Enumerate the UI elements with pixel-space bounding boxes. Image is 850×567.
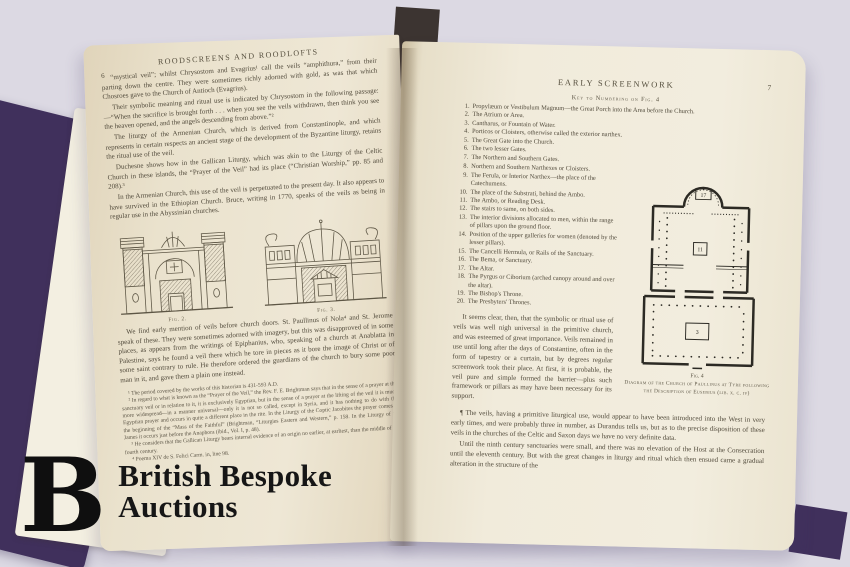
key-item-number: 3. xyxy=(458,119,472,128)
key-list-full-width: 1.Propylæum or Vestibulum Magnum—the Gre… xyxy=(457,103,772,170)
left-page-number: 6 xyxy=(101,72,105,80)
paragraph: It seems clear, then, that the symbolic … xyxy=(451,312,623,406)
figure-4-caption: Diagram of the Church of Paullinus at Ty… xyxy=(624,380,770,399)
key-item-number: 5. xyxy=(458,136,472,145)
church-plan-diagram-fig4: 17 11 3 xyxy=(625,167,774,374)
paragraph: Until the ninth century sanctuaries were… xyxy=(450,440,765,477)
right-page-number: 7 xyxy=(767,83,771,92)
key-item-number: 8. xyxy=(457,163,471,172)
key-item-number: 11. xyxy=(456,196,470,205)
watermark-line2: Auctions xyxy=(118,491,332,522)
right-header-title: EARLY SCREENWORK xyxy=(558,77,675,90)
key-and-diagram-columns: 8.Northern and Southern Narthexes or Clo… xyxy=(451,163,771,410)
key-item-number: 19. xyxy=(454,289,468,298)
bottom-paragraphs: ¶ The veils, having a primitive liturgic… xyxy=(450,409,765,477)
cover-corner-bottom-right xyxy=(789,504,848,560)
key-item-number: 9. xyxy=(457,171,471,188)
rood-screen-drawing-fig2 xyxy=(114,222,235,318)
right-page: EARLY SCREENWORK 7 Key to Numbering on F… xyxy=(390,41,806,551)
diagram-number-cantharus: 3 xyxy=(696,330,699,336)
key-item-number: 13. xyxy=(456,213,470,230)
key-item-number: 18. xyxy=(454,273,468,290)
figure-4-label: Fig. 4 xyxy=(690,373,703,379)
left-page-text-block: 6 ROODSCREENS AND ROODLOFTS “mystical ve… xyxy=(100,44,401,465)
key-item-number: 2. xyxy=(458,111,472,120)
figure-3-caption: Fig. 3. xyxy=(317,307,336,314)
figures-row: Fig. 2. xyxy=(111,212,393,326)
diagram-number-altar: 17 xyxy=(700,193,706,199)
key-item-number: 14. xyxy=(455,230,469,247)
key-item-number: 1. xyxy=(458,103,472,112)
key-item-number: 4. xyxy=(458,128,472,137)
right-running-head: EARLY SCREENWORK 7 xyxy=(459,75,773,93)
right-page-text-block: EARLY SCREENWORK 7 Key to Numbering on F… xyxy=(450,75,774,477)
photograph-of-open-book: 6 ROODSCREENS AND ROODLOFTS “mystical ve… xyxy=(0,0,850,567)
bba-logo-b-icon: B xyxy=(20,452,106,542)
key-item-number: 10. xyxy=(456,188,470,197)
key-item-number: 15. xyxy=(455,247,469,256)
auction-watermark: B British Bespoke Auctions xyxy=(20,452,332,542)
key-item-number: 16. xyxy=(455,256,469,265)
diagram-number-ambo: 11 xyxy=(697,247,703,253)
diagram-column: 17 11 3 Fig. 4 Diagram of the Church of … xyxy=(621,167,775,410)
rood-screen-drawing-fig3 xyxy=(258,212,389,309)
key-list-narrow-column: 8.Northern and Southern Narthexes or Clo… xyxy=(451,163,627,406)
key-item-number: 7. xyxy=(457,153,471,162)
auction-house-name: British Bespoke Auctions xyxy=(118,460,332,522)
key-item-number: 20. xyxy=(454,298,468,307)
watermark-line1: British Bespoke xyxy=(118,460,332,491)
figure-3: Fig. 3. xyxy=(258,212,390,317)
key-item-number: 6. xyxy=(457,145,471,154)
key-item-number: 12. xyxy=(456,205,470,214)
figure-2: Fig. 2. xyxy=(114,222,236,326)
figure-2-caption: Fig. 2. xyxy=(168,316,187,323)
key-item-number: 17. xyxy=(455,264,469,273)
